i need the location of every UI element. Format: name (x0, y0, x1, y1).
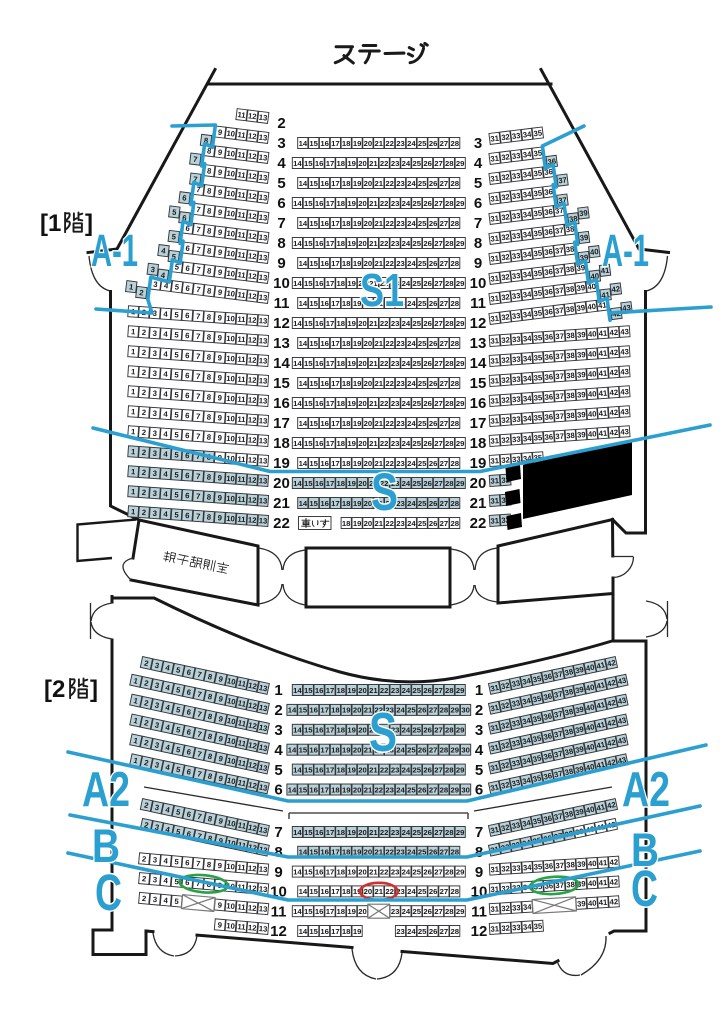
svg-text:17: 17 (320, 706, 329, 715)
svg-text:15: 15 (273, 375, 290, 392)
svg-text:36: 36 (543, 751, 553, 762)
svg-text:33: 33 (511, 211, 521, 221)
svg-text:13: 13 (259, 456, 268, 466)
svg-text:40: 40 (588, 349, 597, 359)
svg-text:6: 6 (185, 431, 190, 440)
svg-text:13: 13 (258, 683, 268, 694)
svg-text:24: 24 (402, 159, 411, 168)
svg-text:14: 14 (299, 139, 308, 148)
svg-text:23: 23 (396, 339, 405, 348)
svg-text:10: 10 (226, 394, 235, 404)
svg-text:34: 34 (523, 434, 533, 444)
svg-text:19: 19 (353, 419, 362, 428)
svg-text:12: 12 (247, 681, 257, 692)
svg-text:24: 24 (407, 419, 416, 428)
svg-text:17: 17 (326, 319, 335, 328)
svg-text:10: 10 (226, 414, 235, 424)
svg-text:22: 22 (380, 765, 389, 774)
svg-text:17: 17 (331, 419, 340, 428)
svg-text:20: 20 (358, 907, 367, 916)
svg-text:11: 11 (470, 295, 486, 312)
svg-text:16: 16 (320, 179, 329, 188)
svg-text:13: 13 (258, 723, 268, 734)
svg-text:22: 22 (385, 379, 394, 388)
svg-text:28: 28 (451, 179, 460, 188)
svg-text:18: 18 (337, 279, 346, 288)
svg-text:22: 22 (385, 139, 394, 148)
svg-text:19: 19 (342, 706, 351, 715)
svg-text:15: 15 (304, 765, 313, 774)
svg-text:26: 26 (418, 706, 427, 715)
svg-text:10: 10 (226, 229, 236, 239)
svg-text:43: 43 (617, 716, 627, 727)
svg-text:33: 33 (512, 863, 521, 873)
svg-text:25: 25 (413, 199, 422, 208)
svg-text:22: 22 (380, 867, 389, 876)
svg-text:27: 27 (440, 379, 449, 388)
svg-text:6: 6 (185, 391, 190, 400)
svg-text:10: 10 (226, 129, 236, 139)
svg-text:15: 15 (304, 867, 313, 876)
svg-text:24: 24 (407, 927, 416, 936)
svg-text:25: 25 (413, 828, 422, 837)
svg-text:6: 6 (185, 331, 190, 340)
svg-text:33: 33 (511, 151, 521, 161)
svg-text:26: 26 (429, 179, 438, 188)
svg-text:24: 24 (402, 479, 411, 488)
svg-text:16: 16 (320, 299, 329, 308)
svg-text:33: 33 (511, 231, 521, 241)
svg-text:23: 23 (396, 179, 405, 188)
svg-text:15: 15 (304, 399, 313, 408)
svg-text:11: 11 (237, 355, 246, 365)
svg-text:12: 12 (247, 291, 257, 301)
svg-text:10: 10 (226, 434, 235, 444)
svg-text:24: 24 (407, 259, 416, 268)
svg-text:14: 14 (299, 927, 308, 936)
svg-text:32: 32 (501, 152, 511, 162)
svg-text:24: 24 (407, 339, 416, 348)
svg-text:27: 27 (429, 785, 438, 794)
svg-text:18: 18 (342, 139, 351, 148)
svg-text:14: 14 (293, 359, 302, 368)
svg-text:19: 19 (347, 439, 356, 448)
svg-text:12: 12 (471, 923, 488, 940)
svg-text:22: 22 (385, 219, 394, 228)
svg-text:12: 12 (247, 740, 257, 751)
svg-text:24: 24 (402, 907, 411, 916)
svg-text:28: 28 (445, 399, 454, 408)
svg-text:10: 10 (226, 776, 236, 787)
svg-text:20: 20 (358, 399, 367, 408)
svg-text:32: 32 (501, 192, 511, 202)
svg-text:15: 15 (304, 159, 313, 168)
svg-text:14: 14 (293, 279, 302, 288)
svg-text:20: 20 (358, 359, 367, 368)
svg-text:20: 20 (358, 726, 367, 735)
svg-text:40: 40 (585, 722, 595, 733)
svg-text:18: 18 (342, 219, 351, 228)
svg-text:7: 7 (196, 432, 201, 441)
svg-text:38: 38 (566, 431, 576, 441)
svg-text:19: 19 (347, 686, 356, 695)
svg-text:41: 41 (598, 409, 608, 419)
svg-text:12: 12 (247, 251, 257, 261)
svg-text:33: 33 (511, 698, 521, 709)
svg-text:29: 29 (456, 686, 465, 695)
svg-text:15: 15 (304, 239, 313, 248)
svg-text:6: 6 (274, 782, 282, 799)
svg-text:29: 29 (456, 479, 465, 488)
svg-text:31: 31 (490, 336, 500, 346)
svg-text:20: 20 (358, 479, 367, 488)
svg-text:27: 27 (434, 199, 443, 208)
svg-text:9: 9 (217, 513, 222, 522)
svg-text:17: 17 (273, 415, 290, 432)
svg-text:21: 21 (369, 239, 378, 248)
svg-text:43: 43 (620, 367, 629, 377)
svg-text:15: 15 (299, 706, 308, 715)
svg-text:13: 13 (258, 153, 268, 163)
svg-text:25: 25 (413, 686, 422, 695)
svg-text:16: 16 (320, 887, 329, 896)
svg-text:35: 35 (533, 393, 543, 403)
svg-text:39: 39 (574, 665, 584, 676)
svg-text:27: 27 (434, 159, 443, 168)
svg-text:6: 6 (185, 311, 190, 320)
svg-text:40: 40 (590, 247, 600, 257)
svg-text:9: 9 (474, 255, 482, 272)
svg-text:25: 25 (413, 765, 422, 774)
svg-text:14: 14 (288, 746, 297, 755)
svg-text:5: 5 (475, 762, 483, 779)
svg-text:28: 28 (440, 746, 449, 755)
svg-text:17: 17 (470, 415, 487, 432)
svg-text:S: S (371, 463, 398, 522)
svg-text:15: 15 (309, 299, 318, 308)
svg-text:14: 14 (293, 765, 302, 774)
svg-text:7: 7 (196, 352, 201, 361)
svg-text:A2: A2 (622, 763, 670, 817)
svg-text:7: 7 (196, 372, 201, 381)
svg-text:23: 23 (391, 239, 400, 248)
svg-text:7: 7 (196, 472, 201, 481)
svg-text:15: 15 (304, 279, 313, 288)
svg-text:S: S (369, 701, 397, 763)
svg-text:26: 26 (423, 319, 432, 328)
svg-text:37: 37 (553, 811, 563, 822)
svg-text:28: 28 (451, 419, 460, 428)
svg-text:32: 32 (500, 780, 510, 791)
svg-text:27: 27 (440, 299, 449, 308)
svg-text:36: 36 (544, 862, 553, 872)
svg-text:37: 37 (553, 729, 563, 740)
svg-text:4: 4 (277, 155, 286, 172)
svg-text:18: 18 (337, 399, 346, 408)
svg-text:10: 10 (226, 862, 235, 872)
svg-text:18: 18 (337, 359, 346, 368)
svg-text:33: 33 (511, 678, 521, 689)
svg-text:41: 41 (598, 898, 608, 908)
svg-text:4: 4 (475, 742, 484, 759)
svg-text:28: 28 (451, 379, 460, 388)
svg-text:3: 3 (152, 369, 157, 378)
svg-text:2: 2 (142, 428, 147, 437)
svg-text:27: 27 (440, 519, 449, 528)
svg-text:31: 31 (490, 476, 500, 486)
svg-text:24: 24 (402, 765, 411, 774)
svg-text:40: 40 (585, 805, 595, 816)
svg-text:15: 15 (309, 219, 318, 228)
svg-text:3: 3 (274, 722, 282, 739)
svg-text:13: 13 (273, 335, 290, 352)
svg-text:27: 27 (434, 239, 443, 248)
svg-text:28: 28 (451, 339, 460, 348)
svg-text:13: 13 (259, 416, 268, 426)
svg-text:11: 11 (237, 315, 246, 325)
svg-text:39: 39 (576, 283, 586, 293)
svg-text:25: 25 (418, 927, 427, 936)
svg-text:32: 32 (501, 232, 511, 242)
svg-text:25: 25 (418, 499, 427, 508)
svg-text:10: 10 (226, 249, 236, 259)
svg-text:37: 37 (555, 392, 564, 402)
svg-text:28: 28 (445, 765, 454, 774)
svg-text:A2: A2 (82, 763, 130, 817)
svg-text:15: 15 (304, 479, 313, 488)
svg-text:36: 36 (544, 287, 554, 297)
svg-text:5: 5 (474, 175, 482, 192)
svg-text:13: 13 (259, 496, 268, 506)
svg-text:27: 27 (440, 459, 449, 468)
svg-text:20: 20 (358, 686, 367, 695)
svg-text:37: 37 (555, 372, 564, 382)
svg-text:26: 26 (423, 867, 432, 876)
svg-text:2: 2 (142, 388, 147, 397)
svg-text:12: 12 (248, 355, 257, 365)
svg-text:8: 8 (277, 235, 285, 252)
svg-text:21: 21 (369, 199, 378, 208)
svg-text:26: 26 (429, 887, 438, 896)
svg-text:2: 2 (142, 488, 147, 497)
svg-text:19: 19 (347, 319, 356, 328)
svg-text:25: 25 (413, 279, 422, 288)
svg-text:8: 8 (274, 844, 282, 861)
svg-text:3: 3 (152, 469, 157, 478)
svg-text:37: 37 (553, 749, 563, 760)
svg-text:13: 13 (258, 253, 268, 263)
svg-text:11: 11 (237, 515, 246, 525)
svg-text:19: 19 (347, 199, 356, 208)
svg-text:34: 34 (523, 394, 533, 404)
svg-text:14: 14 (293, 726, 302, 735)
svg-text:7: 7 (196, 312, 201, 321)
svg-text:23: 23 (391, 907, 400, 916)
svg-text:10: 10 (226, 354, 235, 364)
svg-text:3: 3 (152, 509, 157, 518)
svg-text:28: 28 (445, 239, 454, 248)
svg-text:9: 9 (274, 864, 282, 881)
svg-text:13: 13 (258, 782, 268, 793)
svg-text:19: 19 (273, 455, 290, 472)
svg-text:10: 10 (226, 289, 236, 299)
svg-text:21: 21 (369, 319, 378, 328)
svg-text:17: 17 (326, 359, 335, 368)
svg-text:17: 17 (326, 726, 335, 735)
svg-text:10: 10 (226, 716, 236, 727)
svg-text:42: 42 (609, 877, 618, 887)
svg-text:7: 7 (196, 859, 201, 868)
svg-text:24: 24 (402, 199, 411, 208)
svg-text:14: 14 (293, 159, 302, 168)
svg-text:37: 37 (555, 352, 564, 362)
svg-text:18: 18 (337, 765, 346, 774)
svg-text:14: 14 (470, 355, 487, 372)
svg-text:27: 27 (434, 726, 443, 735)
svg-text:6: 6 (185, 858, 190, 867)
svg-text:24: 24 (407, 379, 416, 388)
svg-text:17: 17 (326, 159, 335, 168)
svg-text:37: 37 (555, 306, 565, 316)
svg-text:18: 18 (273, 435, 290, 452)
svg-text:28: 28 (445, 479, 454, 488)
svg-text:22: 22 (375, 785, 384, 794)
svg-text:18: 18 (342, 927, 351, 936)
svg-text:20: 20 (358, 319, 367, 328)
svg-text:15: 15 (304, 686, 313, 695)
svg-text:38: 38 (566, 351, 576, 361)
svg-text:18: 18 (470, 435, 487, 452)
svg-text:34: 34 (523, 374, 533, 384)
svg-text:29: 29 (456, 359, 465, 368)
svg-text:27: 27 (434, 279, 443, 288)
svg-text:9: 9 (217, 473, 222, 482)
svg-text:40: 40 (588, 389, 597, 399)
svg-text:19: 19 (353, 139, 362, 148)
svg-text:23: 23 (391, 199, 400, 208)
svg-text:20: 20 (364, 379, 373, 388)
svg-text:12: 12 (247, 111, 257, 121)
svg-text:42: 42 (609, 388, 618, 398)
svg-text:36: 36 (544, 267, 554, 277)
svg-text:32: 32 (500, 760, 510, 771)
svg-text:26: 26 (423, 399, 432, 408)
svg-text:14: 14 (299, 299, 308, 308)
svg-text:24: 24 (407, 299, 416, 308)
svg-text:38: 38 (566, 860, 576, 870)
svg-text:6: 6 (185, 471, 190, 480)
svg-text:29: 29 (456, 828, 465, 837)
svg-text:18: 18 (342, 339, 351, 348)
svg-text:7: 7 (475, 824, 483, 841)
svg-text:43: 43 (617, 735, 627, 746)
svg-text:26: 26 (423, 199, 432, 208)
svg-text:17: 17 (326, 479, 335, 488)
svg-text:35: 35 (533, 433, 543, 443)
svg-text:36: 36 (544, 307, 554, 317)
svg-text:12: 12 (248, 515, 257, 525)
svg-text:24: 24 (396, 785, 405, 794)
svg-text:29: 29 (456, 279, 465, 288)
svg-text:22: 22 (380, 319, 389, 328)
svg-text:24: 24 (407, 519, 416, 528)
svg-text:13: 13 (259, 336, 268, 346)
svg-text:33: 33 (511, 191, 521, 201)
svg-text:16: 16 (315, 907, 324, 916)
svg-text:11: 11 (237, 375, 246, 385)
svg-text:42: 42 (606, 718, 616, 729)
svg-text:24: 24 (407, 887, 416, 896)
svg-text:32: 32 (501, 375, 510, 385)
svg-text:19: 19 (353, 179, 362, 188)
svg-text:25: 25 (413, 479, 422, 488)
svg-text:9: 9 (475, 864, 483, 881)
svg-text:16: 16 (315, 686, 324, 695)
svg-text:17: 17 (326, 239, 335, 248)
svg-text:19: 19 (347, 359, 356, 368)
svg-text:36: 36 (544, 432, 553, 442)
svg-text:12: 12 (248, 395, 257, 405)
svg-text:12: 12 (247, 231, 257, 241)
svg-text:19: 19 (353, 379, 362, 388)
svg-text:14: 14 (293, 828, 302, 837)
svg-text:21: 21 (375, 419, 384, 428)
svg-text:12: 12 (247, 191, 257, 201)
svg-text:28: 28 (451, 459, 460, 468)
svg-text:3: 3 (152, 329, 157, 338)
svg-text:9: 9 (217, 901, 222, 910)
svg-text:16: 16 (315, 279, 324, 288)
svg-text:28: 28 (440, 785, 449, 794)
svg-text:11: 11 (237, 475, 246, 485)
svg-text:15: 15 (309, 459, 318, 468)
svg-text:39: 39 (577, 350, 586, 360)
svg-text:32: 32 (501, 395, 510, 405)
svg-text:28: 28 (445, 159, 454, 168)
svg-text:13: 13 (258, 762, 268, 773)
svg-text:27: 27 (440, 887, 449, 896)
svg-text:40: 40 (587, 302, 597, 312)
svg-text:23: 23 (391, 765, 400, 774)
svg-text:14: 14 (293, 199, 302, 208)
svg-text:9: 9 (217, 393, 222, 402)
svg-text:7: 7 (196, 412, 201, 421)
svg-text:14: 14 (293, 239, 302, 248)
svg-text:37: 37 (555, 412, 564, 422)
svg-text:28: 28 (445, 828, 454, 837)
svg-text:17: 17 (331, 379, 340, 388)
svg-text:42: 42 (606, 800, 616, 811)
svg-text:42: 42 (606, 738, 616, 749)
svg-text:21: 21 (375, 179, 384, 188)
svg-text:13: 13 (258, 865, 267, 875)
svg-text:14: 14 (293, 319, 302, 328)
svg-text:18: 18 (342, 459, 351, 468)
svg-text:25: 25 (407, 706, 416, 715)
svg-text:40: 40 (588, 898, 597, 908)
svg-text:27: 27 (434, 867, 443, 876)
svg-text:10: 10 (226, 474, 235, 484)
svg-text:20: 20 (358, 765, 367, 774)
svg-text:15: 15 (304, 726, 313, 735)
svg-text:22: 22 (380, 399, 389, 408)
svg-text:10: 10 (226, 818, 236, 829)
svg-text:15: 15 (304, 828, 313, 837)
svg-text:18: 18 (337, 199, 346, 208)
svg-text:28: 28 (445, 686, 454, 695)
svg-text:29: 29 (451, 785, 460, 794)
svg-text:A-1: A-1 (602, 225, 649, 276)
